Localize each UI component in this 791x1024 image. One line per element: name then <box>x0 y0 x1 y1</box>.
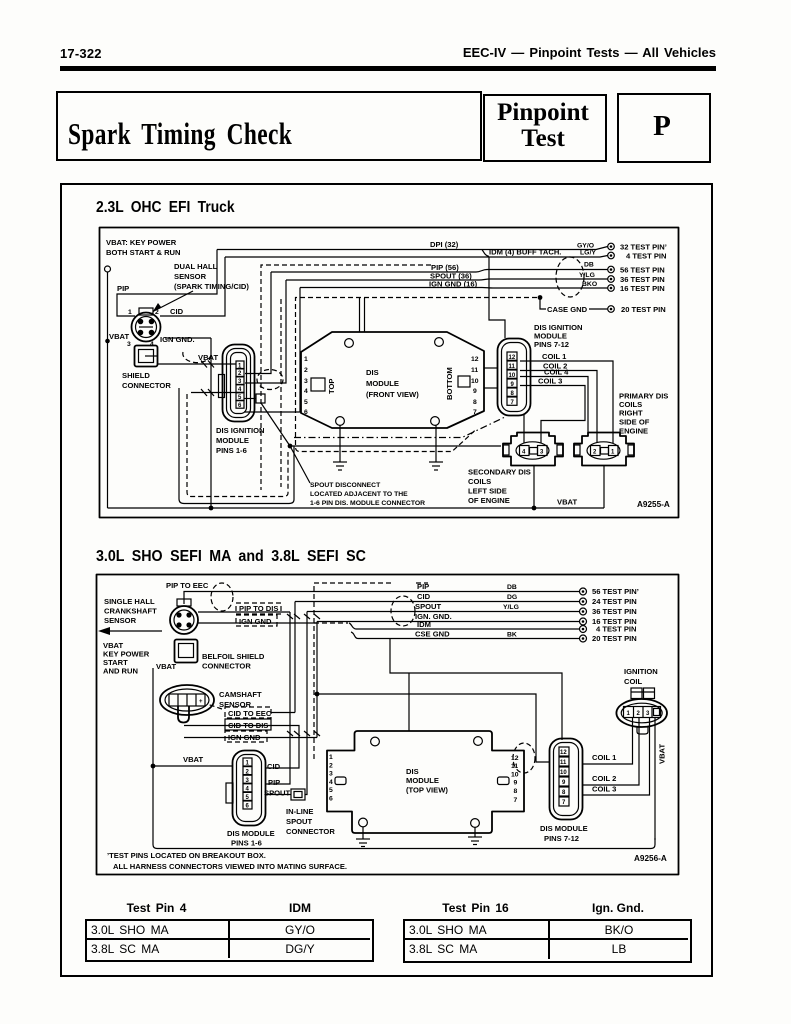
svg-text:SPOUT DISCONNECT: SPOUT DISCONNECT <box>310 482 381 489</box>
svg-text:DG: DG <box>507 594 517 601</box>
svg-text:2: 2 <box>637 711 641 717</box>
svg-text:DIS MODULE: DIS MODULE <box>227 829 275 838</box>
svg-text:COIL 1: COIL 1 <box>592 753 617 762</box>
svg-text:2: 2 <box>593 450 597 456</box>
svg-text:CAMSHAFT: CAMSHAFT <box>219 690 262 699</box>
svg-text:10: 10 <box>511 771 519 778</box>
svg-text:CSE GND: CSE GND <box>415 630 450 639</box>
svg-text:IDM: IDM <box>417 620 431 629</box>
svg-text:IDM (4) BUFF TACH.: IDM (4) BUFF TACH. <box>489 248 561 257</box>
svg-text:7: 7 <box>562 800 566 806</box>
svg-text:COIL 2: COIL 2 <box>592 774 616 783</box>
svg-text:5: 5 <box>304 399 308 406</box>
svg-text:SINGLE HALL: SINGLE HALL <box>104 597 155 606</box>
svg-text:DB: DB <box>507 584 517 591</box>
svg-text:MODULE: MODULE <box>216 436 249 445</box>
svg-text:2: 2 <box>304 367 308 374</box>
svg-text:1: 1 <box>627 711 631 717</box>
svg-text:PIP: PIP <box>268 778 280 787</box>
svg-text:PINS 7-12: PINS 7-12 <box>534 340 569 349</box>
svg-text:10: 10 <box>509 373 516 379</box>
svg-text:AND RUN: AND RUN <box>103 667 138 676</box>
svg-text:4: 4 <box>150 341 154 348</box>
svg-text:Y/LG: Y/LG <box>579 272 595 279</box>
svg-text:3: 3 <box>646 711 650 717</box>
svg-text:32 TEST PIN’: 32 TEST PIN’ <box>620 243 667 252</box>
svg-text:VBAT: VBAT <box>156 662 176 671</box>
svg-text:20 TEST PIN: 20 TEST PIN <box>592 634 637 643</box>
svg-text:1: 1 <box>329 754 333 761</box>
svg-text:SENSOR: SENSOR <box>104 616 137 625</box>
svg-text:36 TEST PIN: 36 TEST PIN <box>620 275 665 284</box>
svg-text:SPOUT: SPOUT <box>264 789 291 798</box>
svg-text:9: 9 <box>473 388 477 395</box>
svg-text:16 TEST PIN: 16 TEST PIN <box>620 284 665 293</box>
svg-text:VBAT: VBAT <box>198 353 218 362</box>
svg-text:3: 3 <box>540 450 544 456</box>
svg-text:7: 7 <box>514 797 518 804</box>
svg-text:4: 4 <box>522 450 526 456</box>
svg-text:2: 2 <box>329 762 333 769</box>
svg-text:DB: DB <box>584 262 594 269</box>
svg-text:24 TEST PIN: 24 TEST PIN <box>592 597 637 606</box>
svg-text:56 TEST PIN: 56 TEST PIN <box>620 266 665 275</box>
svg-text:CONNECTOR: CONNECTOR <box>286 827 335 836</box>
svg-text:SENSOR: SENSOR <box>219 700 252 709</box>
svg-text:COIL 1: COIL 1 <box>542 352 567 361</box>
svg-text:DIS: DIS <box>406 767 419 776</box>
svg-text:VBAT: VBAT <box>183 755 203 764</box>
svg-text:PIP TO EEC: PIP TO EEC <box>166 581 209 590</box>
svg-text:COIL: COIL <box>624 677 643 686</box>
svg-text:SIDE OF: SIDE OF <box>619 418 650 427</box>
svg-text:4: 4 <box>329 779 333 786</box>
svg-text:(SPARK TIMING/CID): (SPARK TIMING/CID) <box>174 282 249 291</box>
svg-text:LG/Y: LG/Y <box>580 250 596 257</box>
svg-text:6: 6 <box>304 409 308 416</box>
svg-text:1: 1 <box>304 356 308 363</box>
svg-text:SECONDARY DIS: SECONDARY DIS <box>468 468 531 477</box>
svg-text:PINS 1-6: PINS 1-6 <box>216 446 247 455</box>
svg-text:CRANKSHAFT: CRANKSHAFT <box>104 607 157 616</box>
svg-text:20 TEST PIN: 20 TEST PIN <box>621 305 666 314</box>
svg-text:RIGHT: RIGHT <box>619 409 643 418</box>
svg-text:CID: CID <box>417 592 431 601</box>
svg-text:COILS: COILS <box>468 477 491 486</box>
svg-text:12: 12 <box>471 356 479 363</box>
svg-text:VBAT: VBAT <box>557 498 577 507</box>
svg-text:3: 3 <box>304 378 308 385</box>
svg-text:DIS IGNITION: DIS IGNITION <box>216 426 265 435</box>
svg-text:12: 12 <box>509 355 516 361</box>
svg-text:A9255-A: A9255-A <box>637 500 670 509</box>
svg-text:’TEST PINS LOCATED ON BREAKOUT: ’TEST PINS LOCATED ON BREAKOUT BOX. <box>107 851 266 860</box>
svg-text:ENGINE: ENGINE <box>619 427 648 436</box>
svg-text:8: 8 <box>514 788 518 795</box>
svg-text:CONNECTOR: CONNECTOR <box>202 662 251 671</box>
svg-text:SENSOR: SENSOR <box>174 272 207 281</box>
svg-text:CID TO EEC: CID TO EEC <box>228 709 272 718</box>
svg-text:SHIELD: SHIELD <box>122 371 150 380</box>
svg-text:BOTTOM: BOTTOM <box>445 367 454 400</box>
svg-text:SPOUT: SPOUT <box>286 817 313 826</box>
svg-text:IGN GND: IGN GND <box>228 733 261 742</box>
svg-text:10: 10 <box>560 770 567 776</box>
svg-text:Y/LG: Y/LG <box>503 604 519 611</box>
svg-text:4 TEST PIN: 4 TEST PIN <box>596 625 637 634</box>
svg-text:11: 11 <box>471 367 478 374</box>
svg-text:GY/O: GY/O <box>577 243 594 250</box>
svg-text:BKO: BKO <box>582 281 597 288</box>
svg-text:IN-LINE: IN-LINE <box>286 807 313 816</box>
svg-text:SPOUT: SPOUT <box>415 602 442 611</box>
svg-text:VBAT: VBAT <box>658 744 667 764</box>
svg-text:DIS MODULE: DIS MODULE <box>540 824 588 833</box>
svg-text:COIL 4: COIL 4 <box>544 368 569 377</box>
svg-text:DPI (32): DPI (32) <box>430 240 459 249</box>
svg-text:12: 12 <box>560 750 567 756</box>
svg-text:4: 4 <box>304 388 308 395</box>
svg-text:COIL 3: COIL 3 <box>538 377 562 386</box>
svg-text:PINS 1-6: PINS 1-6 <box>231 839 262 848</box>
svg-text:DUAL HALL: DUAL HALL <box>174 262 218 271</box>
svg-text:3: 3 <box>329 771 333 778</box>
svg-text:56 TEST PIN’: 56 TEST PIN’ <box>592 587 639 596</box>
svg-text:BOTH START & RUN: BOTH START & RUN <box>106 248 181 257</box>
svg-text:1: 1 <box>128 309 132 316</box>
svg-text:BELFOIL SHIELD: BELFOIL SHIELD <box>202 652 265 661</box>
svg-text:9: 9 <box>514 780 518 787</box>
svg-text:LEFT SIDE: LEFT SIDE <box>468 487 507 496</box>
svg-text:3: 3 <box>127 341 131 348</box>
svg-text:PIP: PIP <box>117 284 129 293</box>
svg-text:IGNITION: IGNITION <box>624 667 658 676</box>
svg-text:11: 11 <box>560 760 567 766</box>
svg-text:CONNECTOR: CONNECTOR <box>122 381 171 390</box>
svg-text:12: 12 <box>511 755 519 762</box>
svg-text:OF ENGINE: OF ENGINE <box>468 496 510 505</box>
svg-text:PINS 7-12: PINS 7-12 <box>544 834 579 843</box>
svg-text:8: 8 <box>473 399 477 406</box>
svg-text:MODULE: MODULE <box>406 776 439 785</box>
svg-text:CID: CID <box>170 307 184 316</box>
svg-text:BK: BK <box>507 632 517 639</box>
svg-text:LOCATED ADJACENT TO THE: LOCATED ADJACENT TO THE <box>310 491 408 498</box>
svg-text:4 TEST PIN: 4 TEST PIN <box>626 252 667 261</box>
svg-text:CID: CID <box>267 762 281 771</box>
svg-text:1-6 PIN DIS. MODULE CONNECTOR: 1-6 PIN DIS. MODULE CONNECTOR <box>310 500 425 507</box>
svg-text:MODULE: MODULE <box>366 379 399 388</box>
svg-text:11: 11 <box>509 364 516 370</box>
svg-text:ALL HARNESS CONNECTORS VIEWED: ALL HARNESS CONNECTORS VIEWED INTO MATIN… <box>113 862 347 871</box>
svg-text:36 TEST PIN: 36 TEST PIN <box>592 607 637 616</box>
svg-text:A9256-A: A9256-A <box>634 854 667 863</box>
svg-text:6: 6 <box>329 796 333 803</box>
svg-text:IGN GND (16): IGN GND (16) <box>429 280 478 289</box>
svg-text:CID TO DIS: CID TO DIS <box>228 721 268 730</box>
svg-text:PIP TO DIS: PIP TO DIS <box>239 604 278 613</box>
svg-text:IGN GND.: IGN GND. <box>160 335 195 344</box>
svg-text:9: 9 <box>562 780 566 786</box>
svg-text:(FRONT VIEW): (FRONT VIEW) <box>366 390 419 399</box>
svg-text:5: 5 <box>329 787 333 794</box>
svg-text:1: 1 <box>611 450 615 456</box>
svg-text:DIS: DIS <box>366 368 379 377</box>
svg-text:10: 10 <box>471 378 479 385</box>
svg-text:VBAT: KEY POWER: VBAT: KEY POWER <box>106 238 177 247</box>
svg-text:TOP: TOP <box>327 379 336 394</box>
svg-text:COIL 3: COIL 3 <box>592 785 616 794</box>
svg-text:8: 8 <box>562 790 566 796</box>
svg-text:7: 7 <box>473 409 477 416</box>
svg-text:IGN GND: IGN GND <box>239 617 272 626</box>
svg-text:+: + <box>199 699 203 705</box>
svg-text:(TOP VIEW): (TOP VIEW) <box>406 786 448 795</box>
svg-text:CASE GND: CASE GND <box>547 305 588 314</box>
svg-text:VBAT: VBAT <box>109 332 129 341</box>
